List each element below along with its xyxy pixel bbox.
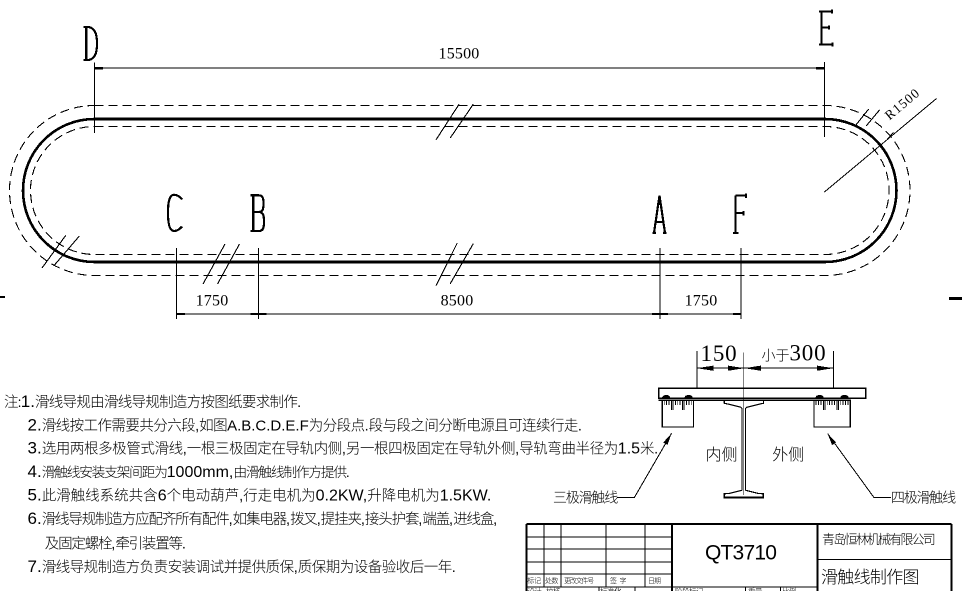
svg-text:2.滑线按工作需要共分六段,如图A.B.C.D.E.F为分段: 2.滑线按工作需要共分六段,如图A.B.C.D.E.F为分段点.段与段之间分断电… [28, 415, 582, 436]
svg-text:7.滑线导规制造方负责安装调试并提供质保,质保期为设备验收后: 7.滑线导规制造方负责安装调试并提供质保,质保期为设备验收后一年. [28, 556, 456, 577]
svg-text:重量: 重量 [748, 586, 763, 591]
svg-text:三极滑触线: 三极滑触线 [553, 488, 618, 508]
svg-text:标记: 标记 [527, 576, 541, 586]
svg-text:1750: 1750 [196, 293, 229, 310]
svg-text:6.滑线导规制造方应配齐所有配件,如集电器,拨叉,提挂夹,接: 6.滑线导规制造方应配齐所有配件,如集电器,拨叉,提挂夹,接头护套,端盖,进线盒… [28, 508, 498, 529]
svg-text:签字: 签字 [610, 576, 629, 586]
svg-text:处数: 处数 [545, 576, 558, 586]
svg-text:校核: 校核 [546, 586, 561, 591]
svg-text:阶段标记: 阶段标记 [675, 586, 704, 591]
svg-text:比例: 比例 [782, 586, 796, 591]
svg-text:5.此滑触线系统共含6个电动葫芦,行走电机为0.2KW,升降: 5.此滑触线系统共含6个电动葫芦,行走电机为0.2KW,升降电机为1.5KW. [28, 485, 492, 506]
svg-text:QT3710: QT3710 [705, 542, 776, 565]
svg-text:及固定螺栓,牵引装置等.: 及固定螺栓,牵引装置等. [45, 533, 186, 554]
svg-text:8500: 8500 [441, 293, 474, 310]
svg-text:150: 150 [701, 341, 738, 366]
svg-text:1750: 1750 [685, 293, 718, 310]
svg-text:四极滑触线: 四极滑触线 [891, 488, 956, 508]
svg-text:小于300: 小于300 [762, 341, 827, 366]
svg-text:滑触线制作图: 滑触线制作图 [821, 563, 919, 588]
svg-text:15500: 15500 [439, 45, 480, 62]
svg-text:设计: 设计 [527, 586, 542, 591]
svg-text:注:1.滑线导规由滑线导规制造方按图纸要求制作.: 注:1.滑线导规由滑线导规制造方按图纸要求制作. [4, 391, 301, 412]
svg-text:标准化: 标准化 [600, 586, 622, 591]
svg-text:青岛恒林机械有限公司: 青岛恒林机械有限公司 [822, 529, 935, 548]
svg-text:3.选用两根多极管式滑线,一根三极固定在导轨内侧,另一根四极: 3.选用两根多极管式滑线,一根三极固定在导轨内侧,另一根四极固定在导轨外侧,导轨… [28, 438, 659, 459]
svg-text:4.滑触线安装支架间距为1000mm,由滑触线制作方提供.: 4.滑触线安装支架间距为1000mm,由滑触线制作方提供. [28, 461, 350, 481]
svg-text:外侧: 外侧 [772, 441, 804, 465]
svg-text:更改文件号: 更改文件号 [564, 576, 594, 586]
svg-text:内侧: 内侧 [706, 441, 738, 465]
svg-text:R1500: R1500 [882, 85, 923, 123]
svg-text:日期: 日期 [648, 576, 661, 586]
